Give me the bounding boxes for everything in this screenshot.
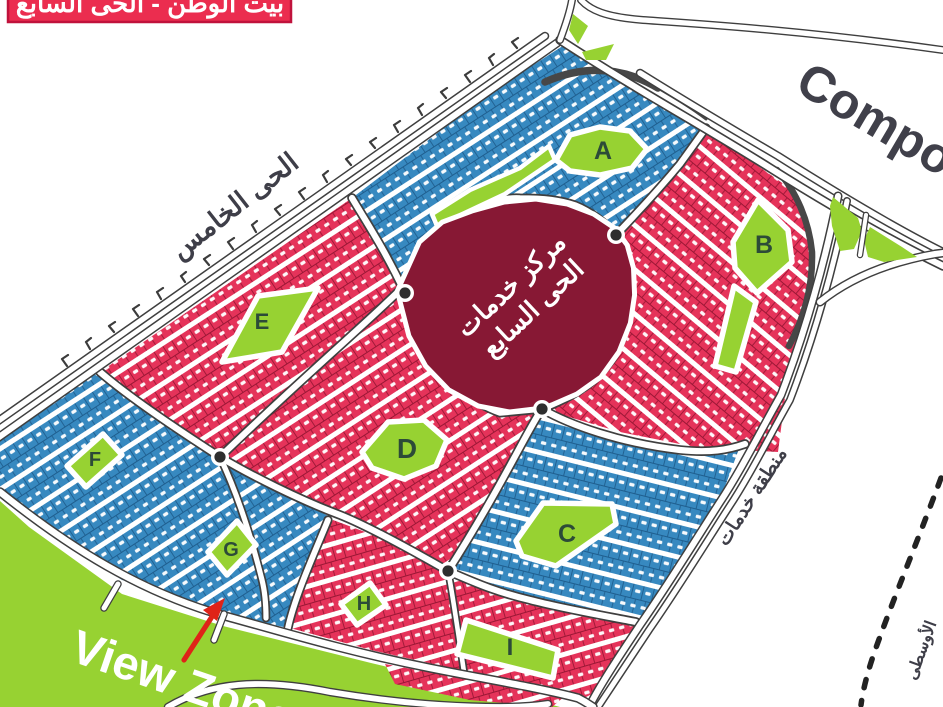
svg-text:E: E bbox=[255, 309, 270, 334]
svg-text:G: G bbox=[223, 539, 239, 561]
svg-text:B: B bbox=[755, 231, 773, 259]
svg-text:F: F bbox=[89, 449, 101, 471]
svg-text:A: A bbox=[594, 137, 612, 165]
svg-text:بيت الوطن - الحى السابع: بيت الوطن - الحى السابع bbox=[16, 0, 284, 19]
svg-text:H: H bbox=[357, 593, 371, 615]
svg-text:D: D bbox=[397, 433, 417, 464]
svg-text:I: I bbox=[507, 634, 514, 661]
svg-text:C: C bbox=[558, 520, 576, 548]
